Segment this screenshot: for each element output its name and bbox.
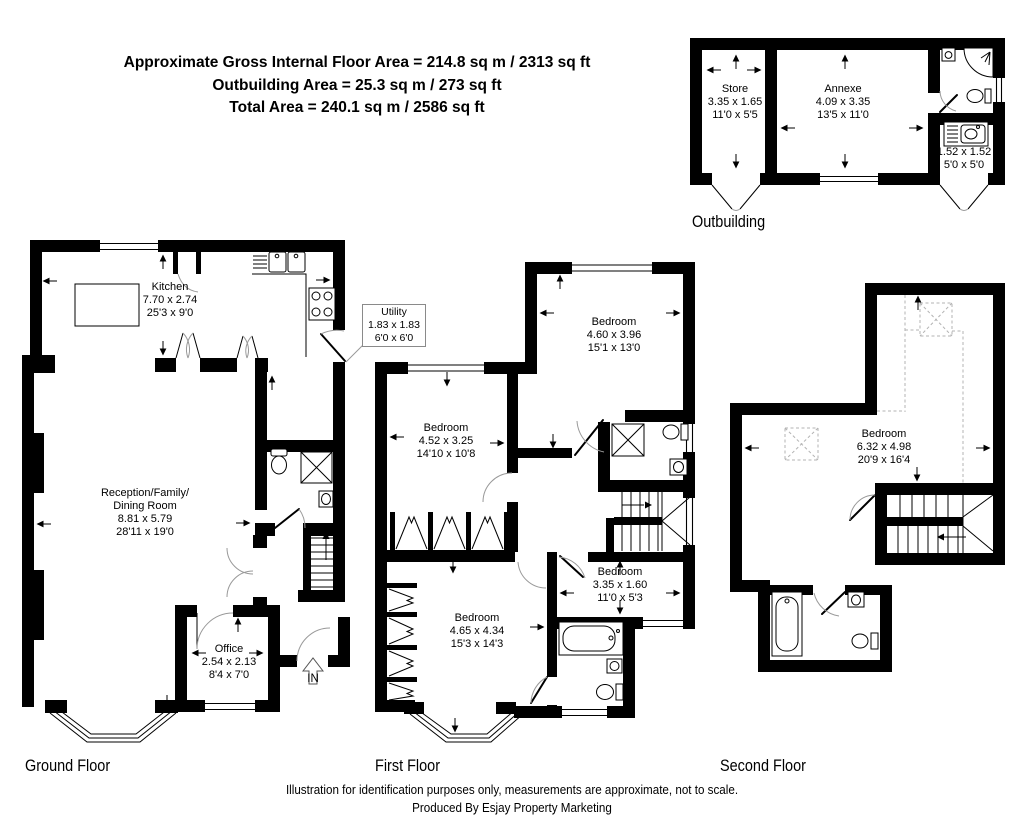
kitchen-window xyxy=(100,244,158,250)
stairs-window xyxy=(687,498,693,545)
bedroom4-wardrobes xyxy=(389,589,413,700)
wc-toilet-icon xyxy=(271,449,287,474)
second-floor-title: Second Floor xyxy=(720,756,806,776)
second-bedroom-door xyxy=(850,495,875,520)
bath-icon xyxy=(559,622,623,655)
ensuite-shower-icon xyxy=(612,424,644,456)
bedroom3-window xyxy=(643,621,683,627)
wc-sink-icon xyxy=(319,491,333,507)
gross-area-line: Approximate Gross Internal Floor Area = … xyxy=(124,52,591,75)
reception-label: Reception/Family/ Dining Room 8.81 x 5.7… xyxy=(101,487,189,539)
annexe-double-door xyxy=(940,185,988,211)
bedroom2-door xyxy=(483,473,512,502)
annexe-label: Annexe 4.09 x 3.35 13'5 x 11'0 xyxy=(816,83,870,122)
outbuilding-shower-room-label: 1.52 x 1.52 5'0 x 5'0 xyxy=(937,146,991,172)
producer-text: Produced By Esjay Property Marketing xyxy=(412,801,612,815)
first-bedroom3-label: Bedroom 3.35 x 1.60 11'0 x 5'3 xyxy=(593,566,647,605)
outbuilding-area-line: Outbuilding Area = 25.3 sq m / 273 sq ft xyxy=(124,75,591,98)
bay-window xyxy=(50,709,176,742)
skylight-icon-2 xyxy=(785,428,818,460)
outbuilding-plan xyxy=(690,38,1005,211)
ensuite-toilet-icon xyxy=(663,424,688,440)
office-label: Office 2.54 x 2.13 8'4 x 7'0 xyxy=(202,643,256,682)
annexe-window xyxy=(820,177,878,182)
floorplan-svg xyxy=(0,0,1024,834)
store-label: Store 3.35 x 1.65 11'0 x 5'5 xyxy=(708,83,762,122)
stove-icon xyxy=(309,288,335,320)
second-bedroom-label: Bedroom 6.32 x 4.98 20'9 x 16'4 xyxy=(857,428,911,467)
bathroom-sink-icon xyxy=(607,659,622,673)
entrance-label: IN xyxy=(307,673,319,685)
office-window xyxy=(205,704,255,710)
bedroom3-door xyxy=(559,556,585,578)
bedroom1-window xyxy=(572,265,652,271)
bay-window-first xyxy=(410,710,523,742)
bathroom-window xyxy=(562,710,607,716)
shower-room-window xyxy=(997,78,1002,102)
total-area-line: Total Area = 240.1 sq m / 2586 sq ft xyxy=(124,97,591,120)
second-sink-icon xyxy=(848,592,864,607)
second-floor-plan xyxy=(730,283,1005,672)
kitchen-island-icon xyxy=(75,284,139,326)
first-bedroom1-label: Bedroom 4.60 x 3.96 15'1 x 13'0 xyxy=(587,316,641,355)
bedroom4-door xyxy=(518,562,546,588)
bedroom2-wardrobes xyxy=(396,517,503,549)
toilet-icon xyxy=(967,89,991,103)
ground-floor-title: Ground Floor xyxy=(25,756,110,776)
back-door xyxy=(321,330,345,361)
reception-double-doors xyxy=(227,548,253,597)
skylight-icon xyxy=(920,303,952,336)
floorplan-page: { "header": { "line1": "Approximate Gros… xyxy=(0,0,1024,834)
header-area-summary: Approximate Gross Internal Floor Area = … xyxy=(124,52,591,120)
wc-shower-icon xyxy=(301,452,332,483)
utility-label: Utility 1.83 x 1.83 6'0 x 6'0 xyxy=(362,304,426,347)
first-bedroom4-label: Bedroom 4.65 x 4.34 15'3 x 14'3 xyxy=(450,612,504,651)
bathroom-door xyxy=(531,677,547,703)
outbuilding-title: Outbuilding xyxy=(692,212,765,232)
store-double-door xyxy=(712,185,760,211)
bathroom-toilet-icon xyxy=(597,684,624,700)
utility-leader-line xyxy=(346,345,363,362)
second-bath-icon xyxy=(772,592,802,656)
first-bedroom2-label: Bedroom 4.52 x 3.25 14'10 x 10'8 xyxy=(417,422,476,461)
first-floor-title: First Floor xyxy=(375,756,440,776)
kitchen-label: Kitchen 7.70 x 2.74 25'3 x 9'0 xyxy=(143,281,197,320)
bedroom2-window xyxy=(408,365,484,371)
second-bathroom-door xyxy=(814,592,845,616)
corner-shower-icon xyxy=(964,48,993,77)
ensuite-sink-icon xyxy=(670,459,687,475)
wc-door xyxy=(275,509,305,528)
disclaimer-text: Illustration for identification purposes… xyxy=(286,783,738,797)
second-toilet-icon xyxy=(852,633,878,649)
kitchen-sink-icon xyxy=(252,252,306,357)
utility-sink-unit-icon xyxy=(944,122,988,146)
second-floor-walls xyxy=(730,283,1005,672)
shower-room-door xyxy=(940,91,957,112)
